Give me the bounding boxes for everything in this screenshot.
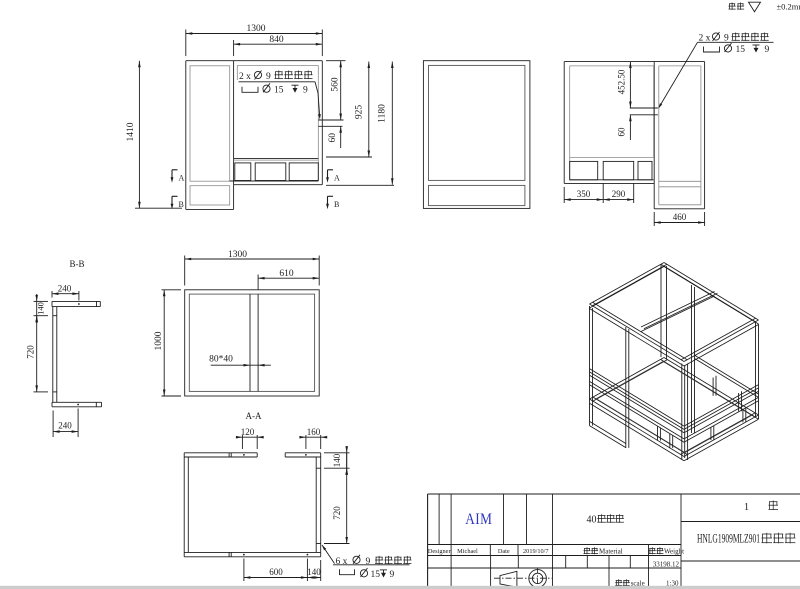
svg-text:9: 9 bbox=[366, 557, 371, 567]
svg-text:560: 560 bbox=[330, 77, 340, 92]
svg-text:140: 140 bbox=[307, 567, 321, 577]
svg-text:452.50: 452.50 bbox=[616, 69, 626, 94]
svg-text:240: 240 bbox=[58, 283, 72, 293]
svg-text:2 x: 2 x bbox=[239, 72, 251, 82]
svg-text:240: 240 bbox=[58, 421, 72, 431]
svg-text:840: 840 bbox=[269, 35, 284, 45]
svg-text:1000: 1000 bbox=[154, 331, 164, 350]
svg-text:HNLG1909MLZ901: HNLG1909MLZ901 bbox=[697, 532, 760, 546]
svg-text:1180: 1180 bbox=[378, 104, 388, 123]
svg-text:15: 15 bbox=[736, 45, 746, 55]
svg-text:60: 60 bbox=[616, 127, 626, 137]
svg-text:460: 460 bbox=[673, 212, 687, 222]
svg-text:1: 1 bbox=[744, 502, 749, 513]
svg-text:9: 9 bbox=[266, 72, 271, 82]
svg-text:40: 40 bbox=[587, 515, 597, 526]
svg-text:140: 140 bbox=[332, 453, 342, 467]
svg-text:Weight: Weight bbox=[664, 547, 684, 555]
svg-text:120: 120 bbox=[241, 427, 255, 437]
svg-text:A: A bbox=[179, 173, 185, 182]
svg-text:80*40: 80*40 bbox=[209, 354, 233, 364]
svg-text:33198.12: 33198.12 bbox=[653, 560, 680, 568]
svg-text:600: 600 bbox=[269, 567, 283, 577]
svg-text:290: 290 bbox=[612, 189, 626, 199]
svg-text:925: 925 bbox=[355, 105, 365, 120]
svg-text:Date: Date bbox=[498, 548, 510, 555]
svg-text:Designer: Designer bbox=[428, 548, 452, 555]
svg-text:15: 15 bbox=[371, 570, 381, 580]
svg-text:AIM: AIM bbox=[465, 511, 492, 528]
svg-text:9: 9 bbox=[390, 570, 395, 580]
svg-text:1410: 1410 bbox=[126, 122, 136, 141]
svg-text:610: 610 bbox=[279, 269, 294, 279]
svg-text:350: 350 bbox=[577, 189, 591, 199]
svg-text:160: 160 bbox=[307, 427, 321, 437]
svg-text:9: 9 bbox=[303, 85, 308, 95]
svg-text:720: 720 bbox=[26, 345, 36, 359]
svg-text:6 x: 6 x bbox=[336, 557, 348, 567]
svg-text:9: 9 bbox=[765, 45, 770, 55]
svg-text:720: 720 bbox=[332, 506, 342, 520]
svg-text:2019/10/7: 2019/10/7 bbox=[523, 548, 549, 555]
svg-text:60: 60 bbox=[328, 133, 338, 143]
svg-text:Material: Material bbox=[599, 547, 623, 555]
svg-text:15: 15 bbox=[274, 85, 284, 95]
svg-text:A-A: A-A bbox=[246, 411, 262, 421]
svg-text:B-B: B-B bbox=[69, 259, 84, 269]
svg-text:B: B bbox=[334, 200, 339, 209]
svg-text:1300: 1300 bbox=[247, 24, 266, 34]
svg-text:B: B bbox=[179, 200, 184, 209]
svg-text:1300: 1300 bbox=[228, 250, 247, 260]
svg-text:±0.2mm: ±0.2mm bbox=[777, 1, 800, 11]
svg-text:140: 140 bbox=[36, 302, 46, 315]
svg-text:Michael: Michael bbox=[457, 548, 478, 555]
svg-text:A: A bbox=[334, 173, 340, 182]
